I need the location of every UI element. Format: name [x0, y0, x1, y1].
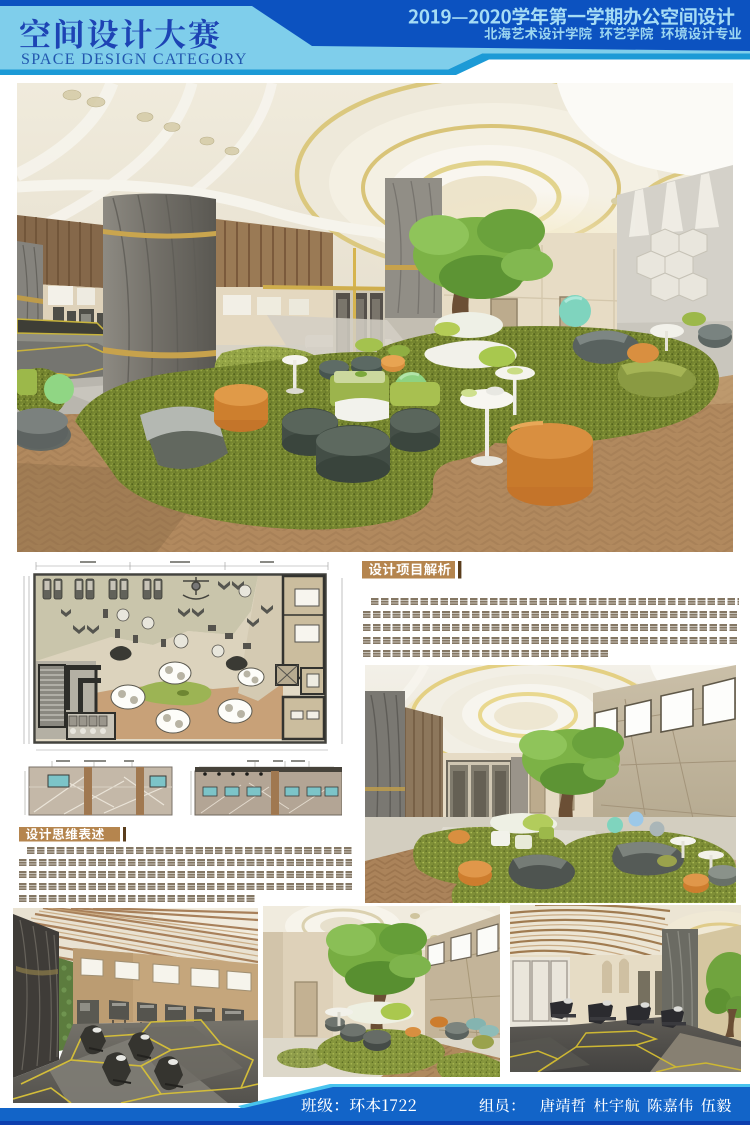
svg-text:SPACE DESIGN CATEGORY: SPACE DESIGN CATEGORY: [21, 51, 248, 68]
